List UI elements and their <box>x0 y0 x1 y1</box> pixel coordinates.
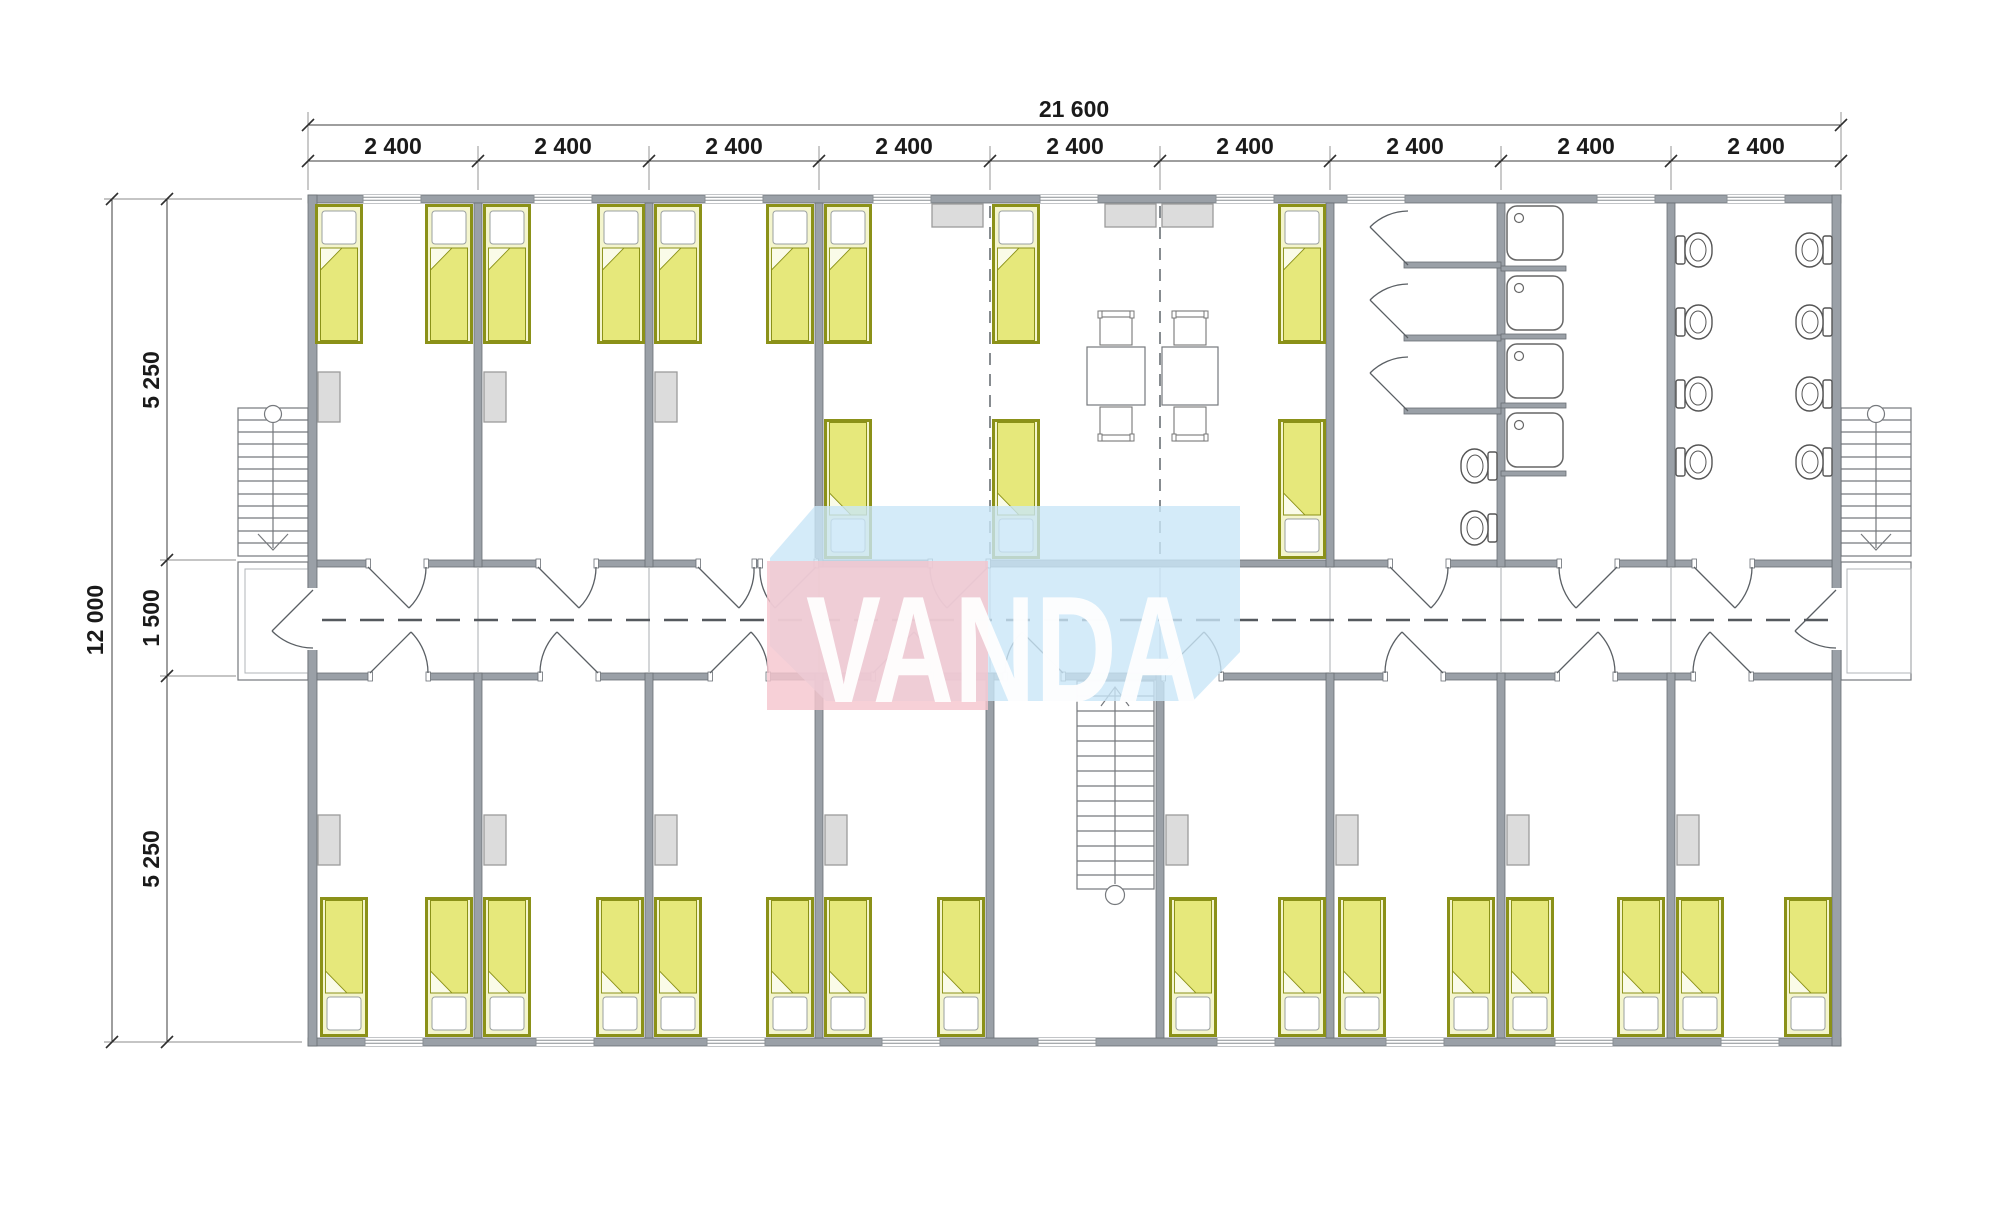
window-icon <box>536 1038 594 1046</box>
bed-icon <box>485 899 530 1036</box>
bed-icon <box>768 206 813 343</box>
dim-bay-7: 2 400 <box>1386 133 1444 159</box>
wardrobe-icon <box>1105 204 1156 227</box>
dim-bay-1: 2 400 <box>364 133 422 159</box>
toilet-icon <box>1461 511 1497 545</box>
toilet-icon <box>1676 377 1712 411</box>
dim-bay-5: 2 400 <box>1046 133 1104 159</box>
toilet-icon <box>1796 233 1832 267</box>
wardrobe-icon <box>1336 815 1358 865</box>
window-icon <box>1216 195 1274 203</box>
window-icon <box>1038 1038 1096 1046</box>
bed-icon <box>1171 899 1216 1036</box>
wardrobe-icon <box>1677 815 1699 865</box>
wardrobe-icon <box>655 815 677 865</box>
dim-top-total: 21 600 <box>1039 96 1109 122</box>
wardrobe-icon <box>932 204 983 227</box>
door-swing <box>1557 632 1615 673</box>
stair-start-circle <box>265 406 282 423</box>
dim-bay-9: 2 400 <box>1727 133 1785 159</box>
stall-door-swing <box>1370 284 1408 338</box>
stair-start-circle <box>1868 406 1885 423</box>
toilet-icon <box>1461 449 1497 483</box>
toilet-icon <box>1676 233 1712 267</box>
door-swing <box>370 632 428 673</box>
bed-icon <box>1280 421 1325 558</box>
window-icon <box>1347 195 1405 203</box>
bed-icon <box>427 899 472 1036</box>
toilet-icon <box>1796 305 1832 339</box>
bed-icon <box>1786 899 1831 1036</box>
dim-left-lower: 5 250 <box>138 830 164 888</box>
bed-icon <box>768 899 813 1036</box>
toilet-room <box>1334 203 1497 560</box>
shower-tray-icon <box>1507 413 1563 467</box>
door-swing <box>1694 567 1752 608</box>
chair-icon <box>1172 407 1208 441</box>
left-exterior-stair <box>238 406 308 557</box>
bed-icon <box>427 206 472 343</box>
bed-icon <box>1280 206 1325 343</box>
wardrobe-icon <box>1166 815 1188 865</box>
door-swing <box>698 567 754 608</box>
door-swing <box>1559 567 1617 608</box>
window-icon <box>1721 1038 1779 1046</box>
door-swing <box>1693 632 1751 673</box>
toilet-icon <box>1796 377 1832 411</box>
window-icon <box>363 195 421 203</box>
door-swing <box>540 632 598 673</box>
stall-door-swing <box>1370 211 1408 265</box>
bed-icon <box>317 206 362 343</box>
dim-bay-4: 2 400 <box>875 133 933 159</box>
wardrobe-icon <box>655 372 677 422</box>
window-icon <box>873 195 931 203</box>
bed-icon <box>598 899 643 1036</box>
bed-icon <box>599 206 644 343</box>
wardrobe-icon <box>1507 815 1529 865</box>
dim-left-total: 12 000 <box>82 585 108 655</box>
window-icon <box>1727 195 1785 203</box>
wardrobe-icon <box>318 372 340 422</box>
window-icon <box>1386 1038 1444 1046</box>
wardrobe-icon <box>1162 204 1213 227</box>
door-swing <box>710 632 768 673</box>
bed-icon <box>1619 899 1664 1036</box>
bed-icon <box>994 206 1039 343</box>
bed-icon <box>1340 899 1385 1036</box>
door-swing <box>538 567 596 608</box>
shower-tray-icon <box>1507 206 1563 260</box>
floor-plan-drawing: 21 600 2 400 2 400 2 400 2 400 2 400 2 4… <box>0 0 2000 1219</box>
floor-plan-canvas: 21 600 2 400 2 400 2 400 2 400 2 400 2 4… <box>0 0 2000 1219</box>
bed-icon <box>826 206 871 343</box>
dim-bay-8: 2 400 <box>1557 133 1615 159</box>
bed-icon <box>656 206 701 343</box>
dim-left-upper: 5 250 <box>138 351 164 409</box>
window-icon <box>1217 1038 1275 1046</box>
stall-door-swing <box>1370 357 1408 411</box>
table-icon <box>1162 347 1218 405</box>
bed-icon <box>656 899 701 1036</box>
dim-bay-3: 2 400 <box>705 133 763 159</box>
stair-start-circle <box>1106 886 1125 905</box>
right-entrance-porch <box>1841 562 1911 680</box>
bed-icon <box>1508 899 1553 1036</box>
window-icon <box>1040 195 1098 203</box>
shower-tray-icon <box>1507 344 1563 398</box>
toilet-icon <box>1676 305 1712 339</box>
window-icon <box>534 195 592 203</box>
left-entrance-porch <box>238 562 308 680</box>
sanitary-fixtures <box>1461 206 1832 545</box>
door-swing <box>1390 567 1448 608</box>
right-exterior-stair <box>1841 406 1911 557</box>
watermark-logo-text: VANDA <box>806 565 1198 735</box>
bed-icon <box>485 206 530 343</box>
bed-icon <box>1678 899 1723 1036</box>
bed-icon <box>1449 899 1494 1036</box>
watermark: VANDA <box>767 506 1240 735</box>
bed-icon <box>826 899 871 1036</box>
window-icon <box>705 195 763 203</box>
dim-left-corridor: 1 500 <box>138 589 164 647</box>
bed-icon <box>322 899 367 1036</box>
wardrobe-icon <box>484 372 506 422</box>
window-icon <box>1555 1038 1613 1046</box>
toilet-icon <box>1676 445 1712 479</box>
wardrobe-icon <box>825 815 847 865</box>
wardrobe-icon <box>318 815 340 865</box>
shower-tray-icon <box>1507 276 1563 330</box>
window-icon <box>365 1038 423 1046</box>
dim-bay-2: 2 400 <box>534 133 592 159</box>
bed-icon <box>939 899 984 1036</box>
wardrobe-icon <box>484 815 506 865</box>
table-icon <box>1087 347 1145 405</box>
window-icon <box>1597 195 1655 203</box>
chair-icon <box>1098 407 1134 441</box>
door-swing <box>368 567 426 608</box>
chair-icon <box>1098 311 1134 345</box>
window-icon <box>882 1038 940 1046</box>
dining-furniture <box>1087 311 1218 441</box>
door-swing <box>1385 632 1443 673</box>
toilet-icon <box>1796 445 1832 479</box>
chair-icon <box>1172 311 1208 345</box>
dim-bay-6: 2 400 <box>1216 133 1274 159</box>
bed-icon <box>1280 899 1325 1036</box>
window-icon <box>707 1038 765 1046</box>
